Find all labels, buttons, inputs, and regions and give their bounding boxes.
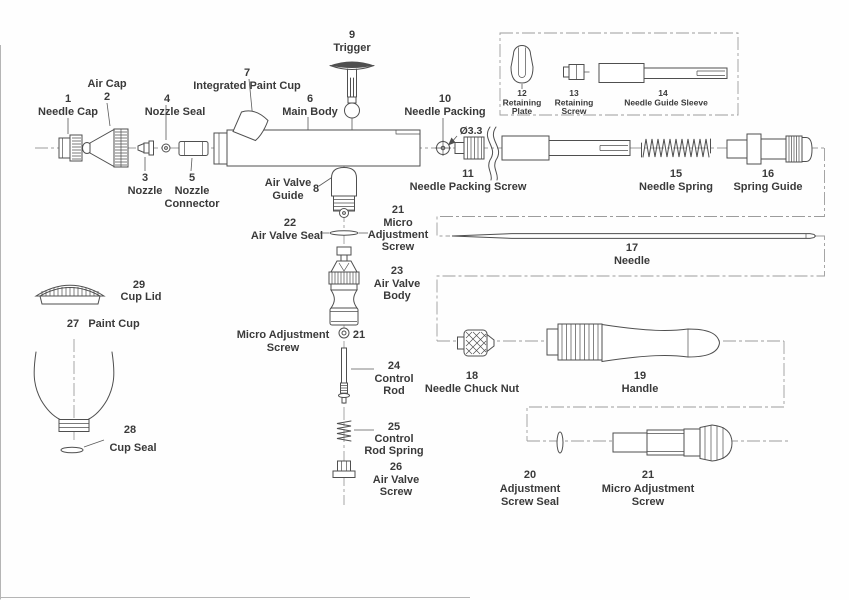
part-nozzle-seal-drawing: [162, 144, 170, 152]
part-name: Cup Seal: [109, 442, 156, 454]
label-nozzle-connector: 5 Nozzle Connector: [165, 172, 221, 210]
part-name: Screw: [267, 342, 300, 354]
part-air-valve-guide-drawing: [332, 168, 357, 212]
part-name: Integrated Paint Cup: [193, 80, 301, 92]
label-diameter-annotation: Ø3.3: [460, 125, 483, 137]
part-needle-drawing: [452, 234, 816, 239]
part-name: Nozzle Seal: [145, 106, 206, 118]
part-name: Air Valve: [373, 474, 419, 486]
part-number: 21: [353, 329, 365, 341]
label-retaining-plate: 12 Retaining Plate: [503, 88, 542, 116]
diagram-canvas: 1 Needle Cap Air Cap 2 3 Nozzle 4 Nozzle…: [0, 0, 849, 600]
label-nozzle-seal: 4 Nozzle Seal: [145, 93, 206, 118]
part-name: Air Cap: [87, 78, 126, 90]
label-spring-guide: 16 Spring Guide: [733, 168, 802, 193]
part-number: 13: [569, 88, 579, 98]
part-name: Needle Spring: [639, 181, 713, 193]
part-number: 4: [164, 93, 171, 105]
part-name: Needle Packing: [404, 106, 485, 118]
part-name: Screw: [382, 241, 415, 253]
part-name: Needle Guide Sleeve: [624, 98, 708, 108]
label-nozzle: 3 Nozzle: [128, 172, 163, 197]
part-name: Control: [374, 433, 413, 445]
part-name: Paint Cup: [88, 318, 140, 330]
label-air-valve-seal: 22 Air Valve Seal: [251, 217, 323, 242]
label-adjustment-screw-seal: 20 Adjustment Screw Seal: [500, 469, 561, 508]
part-number: 10: [439, 93, 451, 105]
label-needle-guide-sleeve: 14 Needle Guide Sleeve: [624, 88, 708, 108]
label-needle-spring: 15 Needle Spring: [639, 168, 713, 193]
label-air-valve-guide: Air Valve Guide 8: [265, 177, 319, 202]
part-number: 25: [388, 421, 400, 433]
part-number: 8: [313, 183, 319, 195]
o-ring-lower-drawing: [339, 328, 349, 338]
part-number: 17: [626, 242, 638, 254]
part-name: Screw: [561, 106, 586, 116]
part-name: Nozzle: [175, 185, 210, 197]
part-name: Rod Spring: [364, 445, 423, 457]
part-main-body-drawing: [214, 111, 420, 166]
o-ring-upper-drawing: [340, 209, 349, 218]
label-paint-cup: 27 Paint Cup: [67, 318, 140, 330]
part-name: Needle: [614, 255, 650, 267]
part-micro-adjustment-screw-drawing: [613, 425, 732, 461]
part-name: Plate: [512, 106, 533, 116]
part-name: Needle Cap: [38, 106, 98, 118]
part-nozzle-drawing: [138, 141, 154, 155]
part-name: Rod: [383, 385, 404, 397]
part-needle-guide-sleeve-drawing: [599, 64, 727, 83]
part-cup-lid-drawing: [36, 285, 104, 304]
part-number: 24: [388, 360, 401, 372]
part-name: Screw: [632, 496, 665, 508]
label-needle-packing: 10 Needle Packing: [404, 93, 485, 118]
part-number: 7: [244, 67, 250, 79]
part-name: Nozzle: [128, 185, 163, 197]
label-needle-chuck-nut: 18 Needle Chuck Nut: [425, 370, 519, 395]
part-number: 23: [391, 265, 403, 277]
label-cup-seal: 28 Cup Seal: [109, 424, 156, 454]
part-name: Needle Chuck Nut: [425, 383, 519, 395]
part-air-cap-drawing: [83, 129, 129, 167]
part-number: 16: [762, 168, 774, 180]
part-name: Micro Adjustment: [237, 329, 330, 341]
part-name: Spring Guide: [733, 181, 802, 193]
part-name: Guide: [272, 190, 303, 202]
dimension-text: Ø3.3: [460, 125, 483, 137]
part-number: 18: [466, 370, 478, 382]
label-micro-adjustment-screw-bottom: 21 Micro Adjustment Screw: [602, 469, 695, 508]
part-number: 3: [142, 172, 148, 184]
label-main-body: 6 Main Body: [282, 93, 338, 118]
part-number: 27: [67, 318, 79, 330]
part-name: Air Valve Seal: [251, 230, 323, 242]
part-nozzle-connector-drawing: [179, 142, 208, 156]
part-name: Adjustment: [368, 229, 429, 241]
part-needle-packing-screw-drawing: [455, 137, 484, 159]
label-air-valve-screw: 26 Air Valve Screw: [373, 461, 419, 498]
part-adjustment-screw-seal-drawing: [557, 432, 563, 453]
part-number: 11: [462, 168, 474, 180]
label-micro-adjustment-screw-stacked: 21 Micro Adjustment Screw: [368, 204, 429, 253]
part-name: Needle Packing Screw: [410, 181, 527, 193]
part-air-valve-screw-drawing: [333, 461, 355, 478]
part-cup-seal-drawing: [61, 447, 83, 453]
part-spring-guide-drawing: [727, 134, 812, 164]
part-number: 14: [658, 88, 668, 98]
label-integrated-paint-cup: 7 Integrated Paint Cup: [193, 67, 301, 92]
part-needle-cap-drawing: [59, 135, 82, 161]
part-needle-chuck-nut-drawing: [458, 330, 495, 356]
part-name: Control: [374, 373, 413, 385]
label-cup-lid: 29 Cup Lid: [121, 279, 162, 303]
part-number: 6: [307, 93, 313, 105]
part-name: Main Body: [282, 106, 338, 118]
label-control-rod-spring: 25 Control Rod Spring: [364, 421, 423, 457]
part-number: 29: [133, 279, 145, 291]
part-name: Micro Adjustment: [602, 483, 695, 495]
part-number: 21: [392, 204, 404, 216]
part-number: 22: [284, 217, 296, 229]
part-name: Connector: [165, 198, 221, 210]
part-number: 5: [189, 172, 195, 184]
part-name: Air Valve: [374, 278, 420, 290]
part-air-valve-seal-drawing: [330, 231, 358, 235]
part-air-valve-body-drawing: [329, 247, 359, 325]
part-number: 15: [670, 168, 682, 180]
label-retaining-screw: 13 Retaining Screw: [555, 88, 594, 116]
part-retaining-screw-drawing: [564, 65, 590, 80]
label-handle: 19 Handle: [622, 370, 659, 395]
part-number: 28: [124, 424, 136, 436]
part-name: Screw: [380, 486, 413, 498]
part-name: Screw Seal: [501, 496, 559, 508]
label-control-rod: 24 Control Rod: [374, 360, 413, 397]
part-name: Cup Lid: [121, 291, 162, 303]
part-number: 9: [349, 29, 355, 41]
part-name: Trigger: [333, 42, 371, 54]
part-name: Air Valve: [265, 177, 311, 189]
part-number: 12: [517, 88, 527, 98]
label-air-cap: Air Cap 2: [87, 78, 126, 103]
part-name: Handle: [622, 383, 659, 395]
part-number: 1: [65, 93, 71, 105]
airbrush-exploded-diagram: 1 Needle Cap Air Cap 2 3 Nozzle 4 Nozzle…: [0, 0, 849, 600]
part-name: Micro: [383, 217, 413, 229]
label-needle-cap: 1 Needle Cap: [38, 93, 98, 118]
part-control-rod-drawing: [339, 348, 350, 403]
part-number: 2: [104, 91, 110, 103]
part-handle-drawing: [547, 324, 720, 362]
part-needle-packing-drawing: [435, 140, 451, 156]
part-number: 19: [634, 370, 646, 382]
part-number: 26: [390, 461, 402, 473]
part-number: 20: [524, 469, 536, 481]
part-retaining-plate-drawing: [511, 46, 533, 84]
label-trigger: 9 Trigger: [333, 29, 371, 54]
label-air-valve-body: 23 Air Valve Body: [374, 265, 420, 302]
label-needle-packing-screw: 11 Needle Packing Screw: [410, 168, 527, 193]
part-number: 21: [642, 469, 654, 481]
part-name: Adjustment: [500, 483, 561, 495]
spring-washer-drawing: [487, 127, 498, 180]
needle-guide-sleeve-inline-drawing: [502, 136, 630, 160]
label-needle: 17 Needle: [614, 242, 650, 267]
part-name: Body: [383, 290, 411, 302]
